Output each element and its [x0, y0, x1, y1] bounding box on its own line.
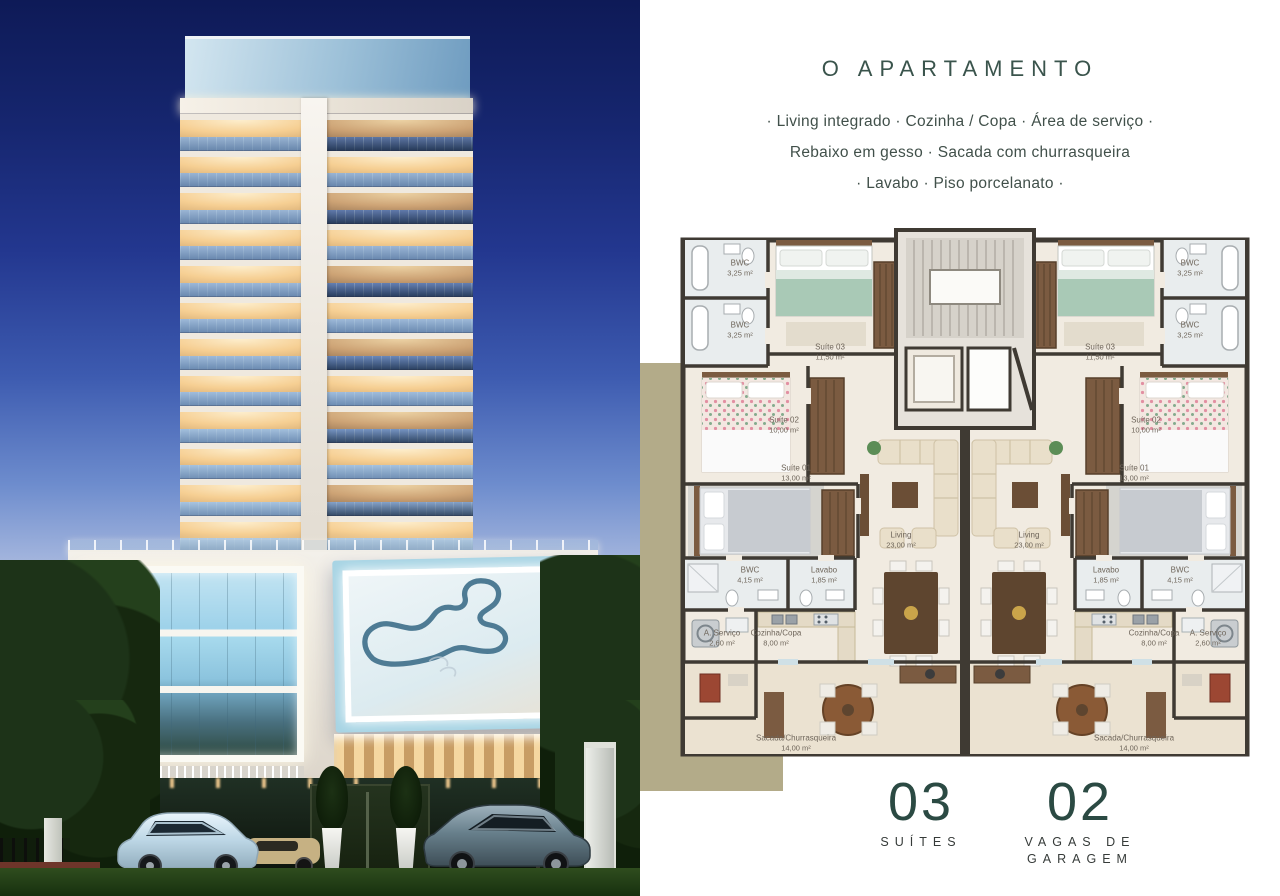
- balcony-floor: [327, 114, 473, 151]
- rooftop-parapet: [185, 36, 470, 98]
- balcony-floor: [180, 406, 301, 443]
- balcony-floor: [180, 187, 301, 224]
- floor-plan: BWC3,25 m² BWC3,25 m² Suíte 0311,50 m² S…: [668, 228, 1262, 766]
- balcony-floor: [180, 151, 301, 188]
- race-track-icon: [346, 568, 569, 701]
- room-label-bwc-3-left: BWC4,15 m²: [737, 566, 762, 585]
- room-label-servico-left: A. Serviço2,60 m²: [704, 629, 740, 648]
- info-panel: O APARTAMENTO · Living integrado · Cozin…: [640, 0, 1280, 896]
- building-photo: [0, 0, 640, 896]
- brochure-page: O APARTAMENTO · Living integrado · Cozin…: [0, 0, 1280, 896]
- feature-line: · Living integrado · Cozinha / Copa · Ár…: [640, 106, 1280, 137]
- balcony-stack-right: [327, 114, 473, 552]
- balcony-floor: [180, 443, 301, 480]
- stat-suites-value: 03: [856, 776, 986, 828]
- room-label-suite2-right: Suíte 0210,00 m²: [1131, 416, 1161, 435]
- balcony-floor: [327, 333, 473, 370]
- balcony-floor: [180, 260, 301, 297]
- balcony-floor: [327, 479, 473, 516]
- stat-garage-label-line2: GARAGEM: [1006, 851, 1154, 868]
- grass-strip: [0, 868, 640, 896]
- balcony-floor: [327, 151, 473, 188]
- floor-plan-graphic: [668, 228, 1262, 766]
- room-label-bwc-2-left: BWC3,25 m²: [727, 321, 752, 340]
- room-label-sacada-left: Sacada/Churrasqueira14,00 m²: [756, 734, 836, 753]
- room-label-living-right: Living23,00 m²: [1014, 531, 1044, 550]
- room-label-living-left: Living23,00 m²: [886, 531, 916, 550]
- balcony-floor: [180, 333, 301, 370]
- stat-garage-label-line1: VAGAS DE: [1006, 834, 1154, 851]
- room-label-suite3-left: Suíte 0311,50 m²: [815, 343, 845, 362]
- room-label-lavabo-right: Lavabo1,85 m²: [1093, 566, 1119, 585]
- balcony-floor: [327, 443, 473, 480]
- feature-line: Rebaixo em gesso · Sacada com churrasque…: [640, 137, 1280, 168]
- party-wall: [960, 428, 970, 754]
- room-label-sacada-right: Sacada/Churrasqueira14,00 m²: [1094, 734, 1174, 753]
- room-label-servico-right: A. Serviço2,60 m²: [1190, 629, 1226, 648]
- room-label-cozinha-left: Cozinha/Copa8,00 m²: [751, 629, 802, 648]
- room-label-bwc-3-right: BWC4,15 m²: [1167, 566, 1192, 585]
- room-label-bwc-top-left: BWC3,25 m²: [727, 259, 752, 278]
- room-label-cozinha-right: Cozinha/Copa8,00 m²: [1129, 629, 1180, 648]
- room-label-suite1-right: Suíte 0113,00 m²: [1119, 464, 1149, 483]
- stat-garage: 02 VAGAS DE GARAGEM: [1006, 776, 1154, 868]
- feature-list: · Living integrado · Cozinha / Copa · Ár…: [640, 106, 1280, 199]
- room-label-bwc-top-right: BWC3,25 m²: [1177, 259, 1202, 278]
- stat-suites: 03 SUÍTES: [856, 776, 986, 851]
- balcony-floor: [180, 114, 301, 151]
- room-label-suite2-left: Suíte 0210,00 m²: [769, 416, 799, 435]
- balcony-floor: [327, 406, 473, 443]
- stat-garage-value: 02: [1006, 776, 1154, 828]
- balcony-floor: [327, 260, 473, 297]
- balcony-floor: [327, 187, 473, 224]
- room-label-suite3-right: Suíte 0311,50 m²: [1085, 343, 1115, 362]
- feature-line: · Lavabo · Piso porcelanato ·: [640, 168, 1280, 199]
- room-label-lavabo-left: Lavabo1,85 m²: [811, 566, 837, 585]
- balcony-floor: [180, 224, 301, 261]
- balcony-floor: [180, 370, 301, 407]
- balcony-floor: [180, 297, 301, 334]
- balcony-floor: [327, 297, 473, 334]
- room-label-suite1-left: Suíte 0113,00 m²: [781, 464, 811, 483]
- page-title: O APARTAMENTO: [640, 56, 1280, 82]
- stat-suites-label: SUÍTES: [856, 834, 986, 851]
- stair-core: [896, 230, 1034, 428]
- balcony-stack-left: [180, 114, 301, 552]
- balcony-floor: [327, 370, 473, 407]
- stat-garage-label: VAGAS DE GARAGEM: [1006, 834, 1154, 868]
- room-label-bwc-2-right: BWC3,25 m²: [1177, 321, 1202, 340]
- balcony-floor: [327, 224, 473, 261]
- balcony-floor: [180, 479, 301, 516]
- suv-right: [416, 798, 598, 878]
